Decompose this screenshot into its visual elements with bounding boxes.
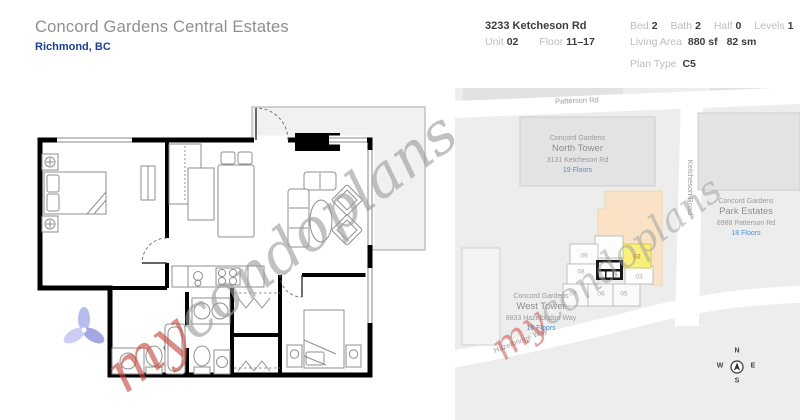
plan-type-value: C5 [682,58,695,70]
north-tower-name: North Tower [520,143,635,156]
living-area-row: Living Area 880 sf 82 sm [630,36,766,48]
unit-value: 02 [507,36,519,48]
park-estates-floors-link[interactable]: 18 Floors [692,229,800,238]
west-tower-name: West Tower [487,301,595,314]
compass-north: N [734,348,739,355]
north-tower-label: Concord Gardens North Tower 3131 Ketches… [520,134,635,175]
floor-label: Floor [539,36,563,48]
mycondoplans-logo [61,307,107,347]
north-tower-floors-link[interactable]: 19 Floors [520,166,635,175]
park-estates-address: 8988 Patterson Rd [692,219,800,228]
bed-value: 2 [652,20,658,32]
floor-plan [2,88,452,420]
living-area-sf: 880 sf [688,36,718,48]
west-tower-address: 8833 Hazelbridge Way [487,314,595,323]
west-tower-floors-link[interactable]: 16 Floors [487,324,595,333]
west-tower-label: Concord Gardens West Tower 8833 Hazelbri… [487,292,595,333]
north-tower-address: 3131 Ketcheson Rd [520,156,635,165]
floor-value: 11–17 [566,36,595,48]
levels-label: Levels [754,20,784,32]
north-tower-brand: Concord Gardens [520,134,635,143]
patterson-road-label: Patterson Rd [555,95,599,106]
compass-south: S [735,378,740,385]
unit-floor-row: Unit02 Floor11–17 [485,36,605,48]
floorplate-unit-06[interactable]: 06 [597,291,604,298]
page-title: Concord Gardens Central Estates [35,18,289,37]
floorplate-unit-08[interactable]: 08 [577,269,584,276]
unit-label: Unit [485,36,504,48]
bath-label: Bath [670,20,692,32]
living-area-sm: 82 sm [727,36,757,48]
floorplate-unit-05[interactable]: 05 [620,291,627,298]
park-estates-label: Concord Gardens Park Estates 8988 Patter… [692,197,800,238]
compass-rose [731,361,743,373]
bed-bath-row: Bed2 Bath2 Half0 Levels1 [630,20,800,32]
park-estates-building [698,113,800,190]
plan-type-row: Plan Type C5 [630,58,706,70]
park-estates-brand: Concord Gardens [692,197,800,206]
bed-label: Bed [630,20,649,32]
page-location: Richmond, BC [35,41,111,53]
west-tower-brand: Concord Gardens [487,292,595,301]
bath-value: 2 [695,20,701,32]
floorplate-unit-03[interactable]: 03 [635,274,642,281]
floorplate-unit-07[interactable]: 07 [569,291,576,298]
compass-west: W [717,363,724,370]
living-area-label: Living Area [630,36,682,48]
plan-type-label: Plan Type [630,58,677,70]
floorplate-unit-02-highlighted[interactable]: 02 [633,254,640,261]
half-label: Half [714,20,733,32]
unit-address: 3233 Ketcheson Rd [485,20,586,32]
levels-value: 1 [788,20,794,32]
compass-east: E [751,363,756,370]
park-estates-name: Park Estates [692,206,800,219]
half-value: 0 [736,20,742,32]
floorplate-unit-09[interactable]: 09 [580,253,587,260]
